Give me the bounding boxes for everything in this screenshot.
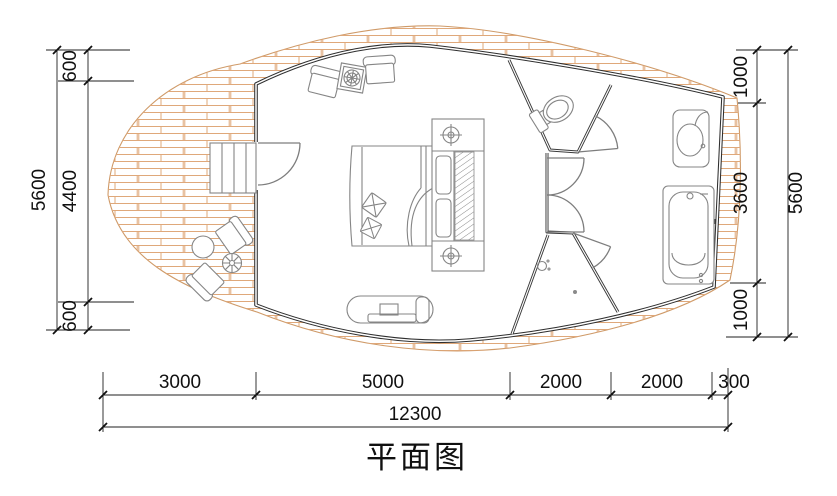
dim-right-seg-1: 3600 bbox=[731, 172, 752, 214]
dim-right-total: 5600 bbox=[786, 172, 807, 214]
wardrobe-unit bbox=[432, 119, 484, 271]
dim-left-seg-2: 600 bbox=[60, 300, 81, 332]
tv-cabinet bbox=[347, 296, 433, 323]
dim-bottom-seg-2: 2000 bbox=[540, 372, 582, 393]
dim-right-seg-2: 1000 bbox=[731, 289, 752, 331]
dim-left-total: 5600 bbox=[29, 169, 50, 211]
dimension-bottom: 3000 5000 2000 2000 300 12300 bbox=[99, 368, 750, 432]
floor-drain-icon bbox=[573, 290, 577, 294]
floor-plan-sheet: 600 4400 600 5600 1000 3600 1000 5600 30… bbox=[0, 0, 837, 496]
coffee-table-icon bbox=[337, 63, 367, 93]
double-bed bbox=[350, 146, 433, 246]
dim-bottom-seg-1: 5000 bbox=[362, 372, 404, 393]
bathtub-icon bbox=[663, 186, 714, 284]
dim-bottom-seg-3: 2000 bbox=[641, 372, 683, 393]
dim-bottom-seg-4: 300 bbox=[718, 372, 750, 393]
drawing-title: 平面图 bbox=[366, 440, 468, 475]
dim-bottom-total: 12300 bbox=[389, 404, 442, 425]
dimension-right: 1000 3600 1000 5600 bbox=[726, 46, 807, 341]
dim-right-seg-0: 1000 bbox=[731, 56, 752, 98]
dim-left-seg-0: 600 bbox=[60, 50, 81, 82]
washbasin-icon bbox=[673, 110, 709, 167]
wardrobe-hatch bbox=[455, 152, 474, 240]
dim-bottom-seg-0: 3000 bbox=[159, 372, 201, 393]
planter-icon bbox=[223, 254, 242, 273]
armchair-icon bbox=[363, 55, 397, 84]
dim-left-seg-1: 4400 bbox=[60, 170, 81, 212]
stairs bbox=[210, 143, 256, 193]
deck-table-icon bbox=[192, 236, 214, 258]
floor-plan-drawing: 600 4400 600 5600 1000 3600 1000 5600 30… bbox=[0, 0, 837, 496]
